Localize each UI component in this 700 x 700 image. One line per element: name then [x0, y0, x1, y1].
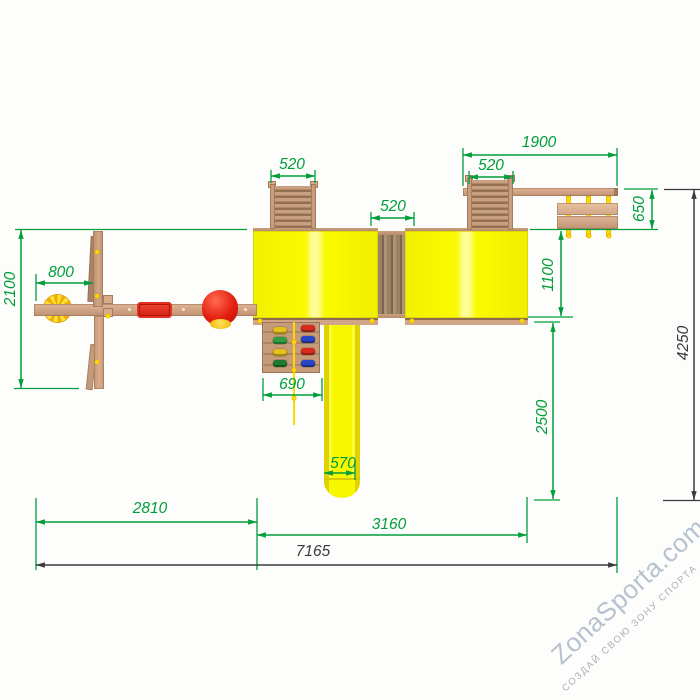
playground-plan-drawing: 2100 800 520 520 520 1900 650 1100 690 2…	[0, 0, 700, 700]
dim-label-690: 690	[279, 376, 305, 394]
dim-label-3160: 3160	[372, 516, 406, 534]
dim-label-4250: 4250	[675, 326, 693, 360]
dim-label-520m: 520	[380, 198, 406, 216]
dimension-2100	[14, 230, 247, 389]
dim-label-2100: 2100	[2, 272, 20, 306]
dim-label-650: 650	[631, 196, 649, 222]
dimension-layer	[0, 0, 700, 700]
dim-label-800: 800	[48, 264, 74, 282]
dim-label-520r: 520	[478, 157, 504, 175]
dim-label-1100: 1100	[540, 258, 558, 291]
dim-label-2500: 2500	[534, 400, 552, 434]
dim-label-2810: 2810	[133, 500, 167, 518]
dim-label-7165: 7165	[296, 543, 330, 561]
dim-label-520l: 520	[279, 156, 305, 174]
dim-label-1900: 1900	[522, 134, 556, 152]
dim-label-570: 570	[330, 455, 356, 473]
